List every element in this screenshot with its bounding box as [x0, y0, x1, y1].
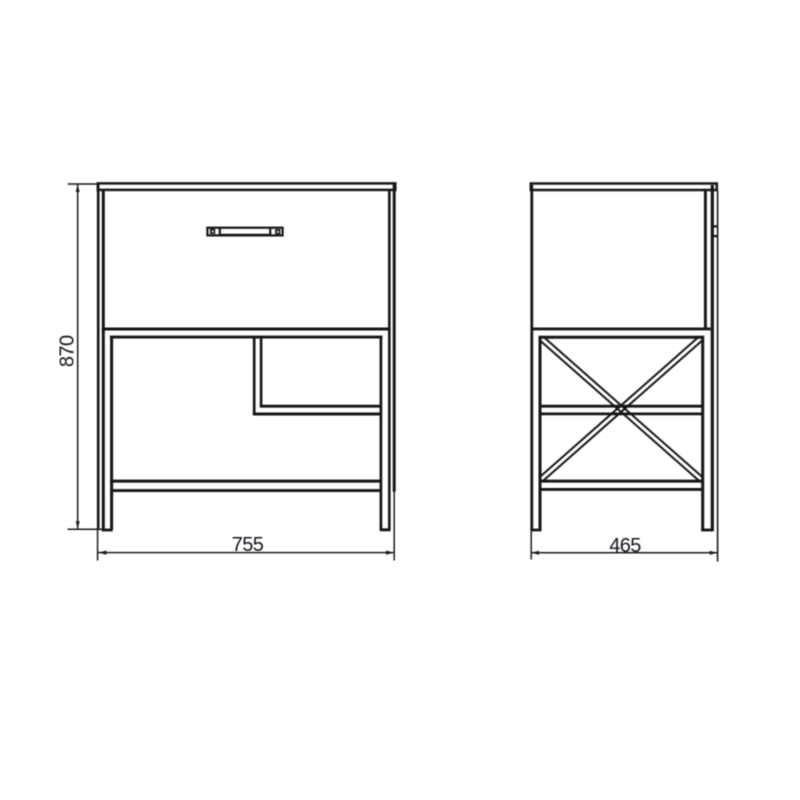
svg-text:465: 465 [609, 535, 641, 557]
svg-text:870: 870 [57, 335, 79, 367]
svg-text:755: 755 [232, 534, 264, 556]
